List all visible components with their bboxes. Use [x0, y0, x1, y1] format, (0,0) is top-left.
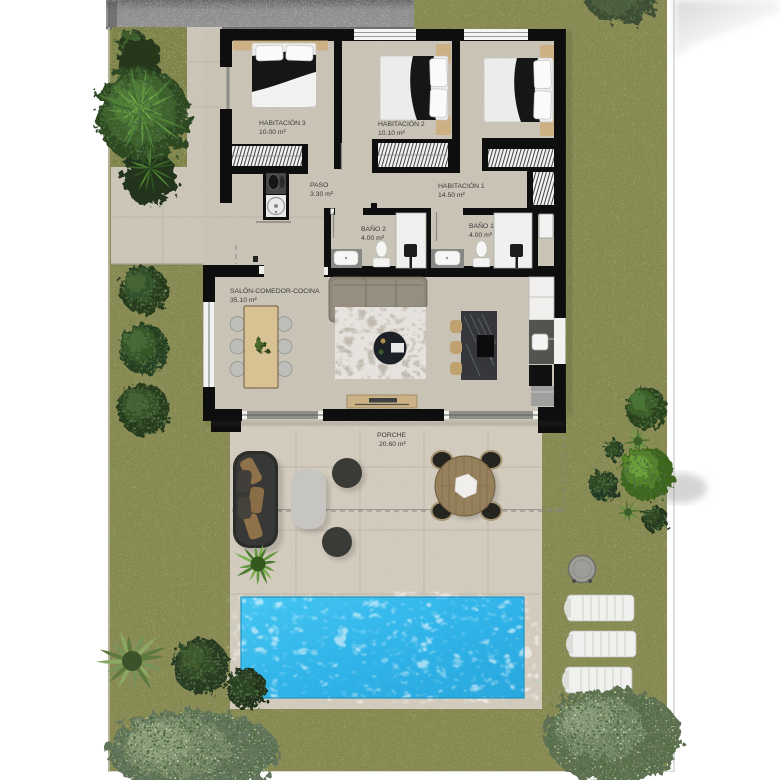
- svg-text:HABITACIÓN 3: HABITACIÓN 3: [259, 118, 306, 127]
- svg-text:BAÑO 1: BAÑO 1: [469, 221, 494, 230]
- svg-text:PORCHE: PORCHE: [377, 432, 407, 439]
- svg-text:14.50 m²: 14.50 m²: [438, 192, 466, 199]
- svg-text:3.30 m²: 3.30 m²: [310, 191, 334, 198]
- svg-text:HABITACIÓN 2: HABITACIÓN 2: [378, 119, 425, 128]
- svg-text:PASO: PASO: [310, 182, 328, 189]
- svg-text:20.60 m²: 20.60 m²: [379, 441, 407, 448]
- svg-text:BAÑO 2: BAÑO 2: [361, 224, 386, 233]
- svg-text:10.00 m²: 10.00 m²: [259, 129, 287, 136]
- svg-text:35.10 m²: 35.10 m²: [230, 297, 258, 304]
- svg-text:10.10 m²: 10.10 m²: [378, 130, 406, 137]
- svg-text:SALÓN-COMEDOR-COCINA: SALÓN-COMEDOR-COCINA: [230, 286, 320, 295]
- svg-text:HABITACIÓN 1: HABITACIÓN 1: [438, 181, 485, 190]
- svg-text:4.00 m²: 4.00 m²: [469, 232, 493, 239]
- svg-text:4.00 m²: 4.00 m²: [361, 235, 385, 242]
